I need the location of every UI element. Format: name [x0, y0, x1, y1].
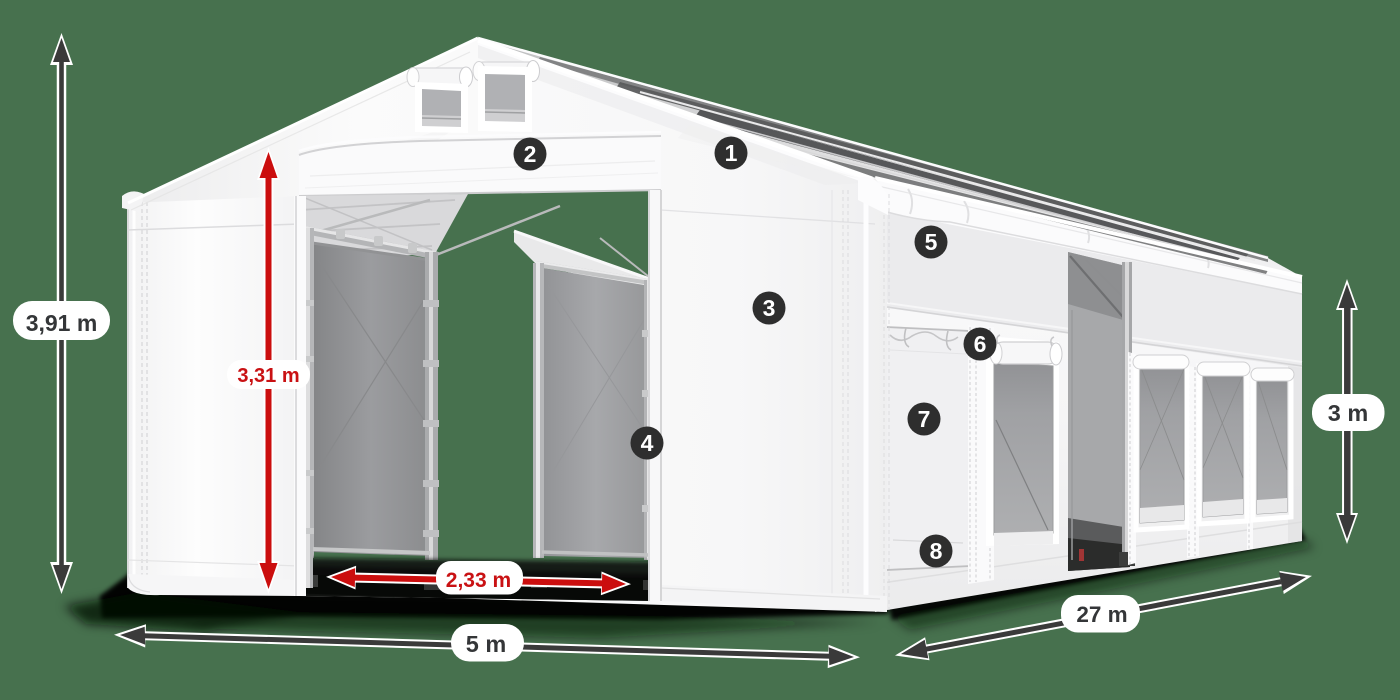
svg-text:4: 4	[641, 430, 654, 456]
svg-text:3: 3	[763, 295, 776, 321]
svg-text:2: 2	[524, 141, 537, 167]
svg-text:2,33 m: 2,33 m	[446, 569, 511, 592]
svg-text:3,31 m: 3,31 m	[237, 365, 299, 387]
svg-text:1: 1	[725, 140, 738, 166]
svg-text:5 m: 5 m	[466, 631, 507, 657]
svg-text:6: 6	[974, 331, 987, 357]
svg-text:7: 7	[918, 406, 931, 432]
svg-text:3 m: 3 m	[1328, 400, 1369, 426]
svg-text:5: 5	[925, 229, 938, 255]
svg-text:27 m: 27 m	[1076, 602, 1127, 627]
svg-text:3,91 m: 3,91 m	[26, 310, 98, 336]
svg-text:8: 8	[930, 538, 943, 564]
